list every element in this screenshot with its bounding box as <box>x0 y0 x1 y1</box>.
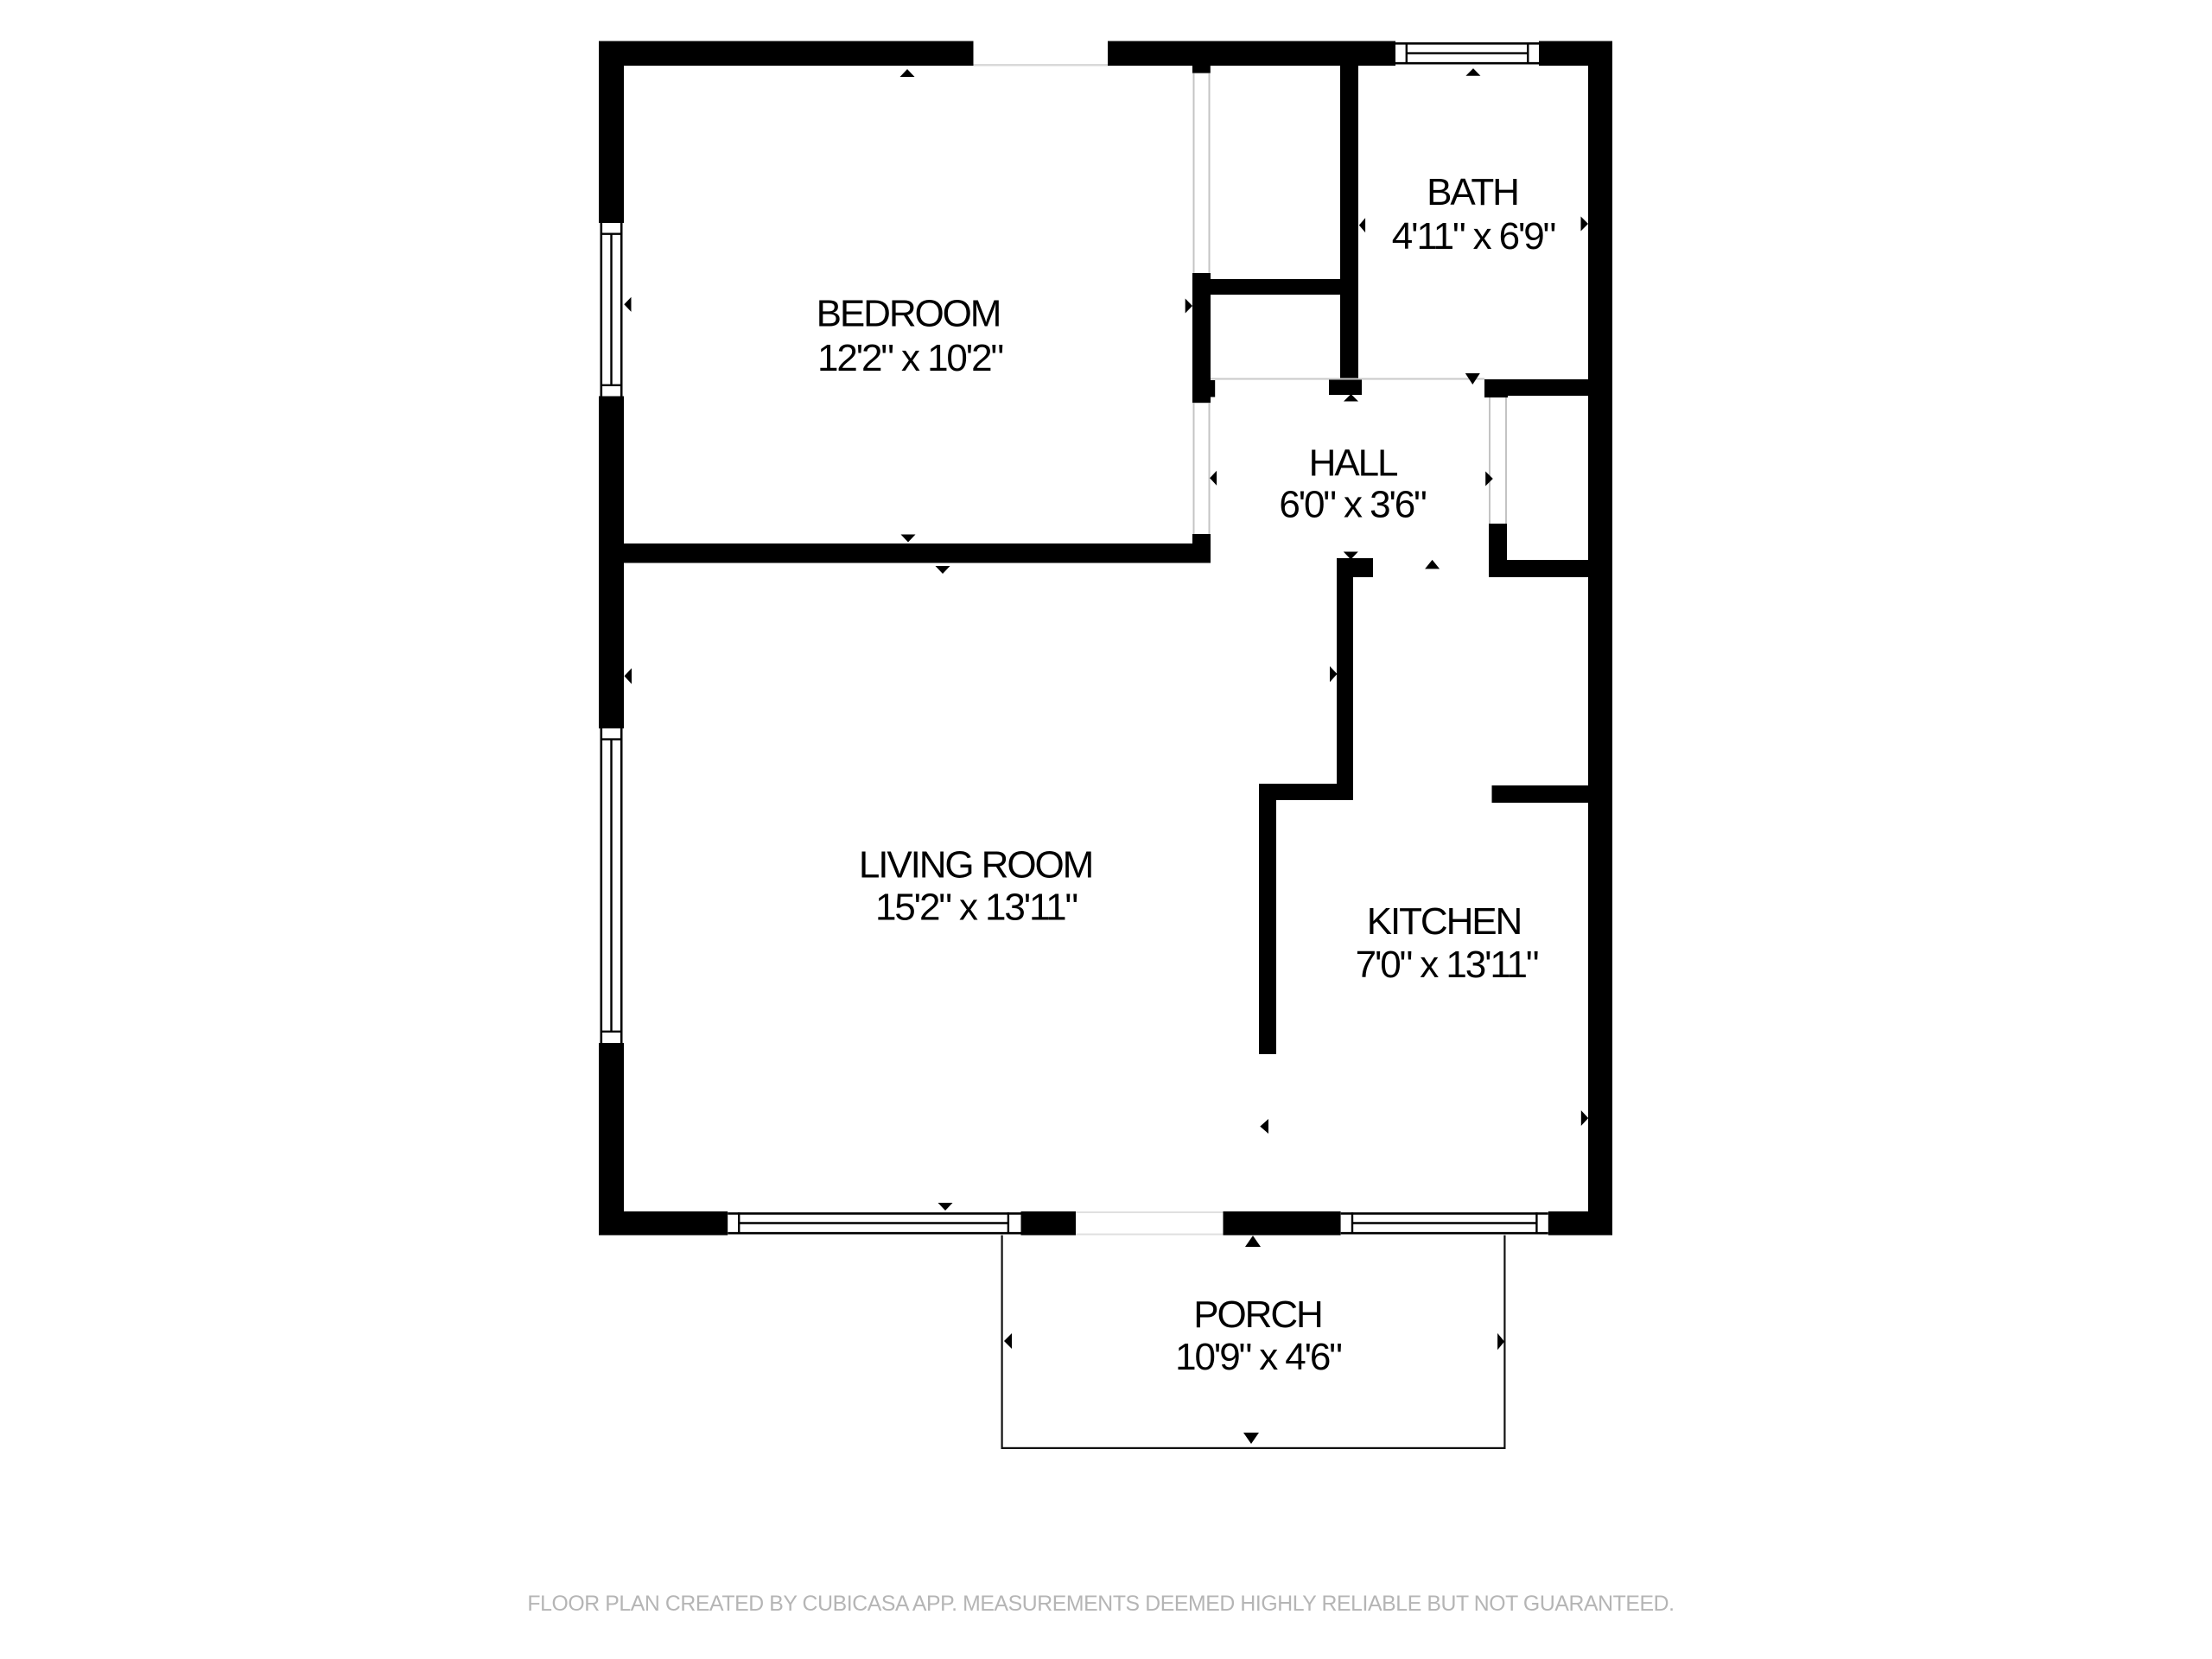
svg-text:FLOOR PLAN CREATED BY CUBICASA: FLOOR PLAN CREATED BY CUBICASA APP. MEAS… <box>527 1592 1674 1616</box>
svg-text:10'9" x 4'6": 10'9" x 4'6" <box>1175 1336 1341 1378</box>
svg-text:6'0" x 3'6": 6'0" x 3'6" <box>1279 484 1426 526</box>
svg-text:LIVING ROOM: LIVING ROOM <box>859 844 1092 887</box>
svg-text:PORCH: PORCH <box>1193 1294 1321 1336</box>
svg-text:KITCHEN: KITCHEN <box>1367 900 1521 943</box>
svg-text:BEDROOM: BEDROOM <box>817 293 1001 335</box>
svg-text:7'0" x 13'11": 7'0" x 13'11" <box>1356 944 1538 986</box>
svg-text:HALL: HALL <box>1309 442 1398 484</box>
svg-text:12'2" x 10'2": 12'2" x 10'2" <box>817 337 1002 379</box>
svg-text:4'11" x 6'9": 4'11" x 6'9" <box>1392 215 1555 257</box>
svg-text:15'2" x 13'11": 15'2" x 13'11" <box>875 887 1077 929</box>
svg-text:BATH: BATH <box>1427 171 1518 213</box>
